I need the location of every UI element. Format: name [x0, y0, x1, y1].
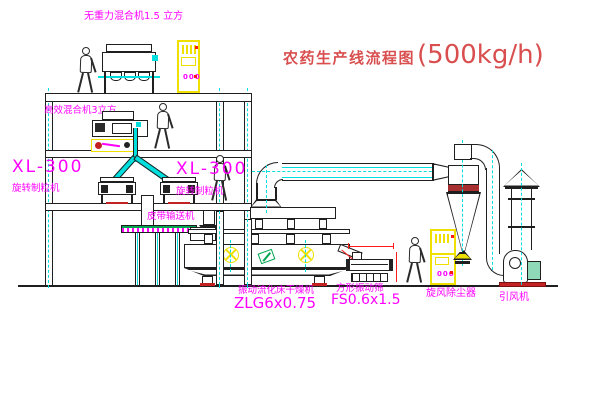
mount-centerline [305, 240, 306, 272]
building-column-right-front [244, 219, 252, 285]
discharge-flapper [455, 261, 470, 264]
granulator-motor [101, 185, 108, 193]
person-figure [151, 103, 175, 149]
person-figure [403, 237, 427, 283]
dryer-feed-pipe [203, 210, 215, 225]
mixer2-discharge-pipe [133, 128, 138, 154]
granulator-base [168, 202, 190, 204]
duct-drop-centerline [266, 165, 267, 213]
screen-deck-line [351, 264, 388, 265]
mixer-body [102, 52, 156, 72]
foot-pad [312, 283, 327, 286]
hood-connector [287, 219, 295, 229]
hood-connector [255, 219, 263, 229]
screen-model-label: FS0.6x1.5 [331, 293, 401, 307]
spring-mount [204, 234, 213, 244]
granulator-motor [126, 185, 133, 193]
fan-scroll [503, 250, 528, 283]
dimension-line [348, 246, 394, 247]
cyclone-cone [446, 192, 481, 252]
mixer2-gearbox [112, 123, 132, 134]
dimension-tick [393, 243, 394, 249]
cabinet-divider [432, 253, 454, 255]
top-mixer-label: 无重力混合机1.5 立方 [84, 12, 183, 22]
conveyor-leg [175, 233, 180, 285]
screen-end-cap [389, 259, 393, 271]
mixer-shaft [98, 76, 160, 78]
column-centerline [247, 219, 248, 285]
screen-base [351, 273, 388, 282]
duct-centerline [252, 171, 452, 172]
spring-mount [286, 234, 295, 244]
duct-horizontal [282, 163, 434, 181]
foot-pad [200, 283, 215, 286]
hood-connector [319, 219, 327, 229]
granulator-leg [101, 195, 103, 204]
granulator-leg [163, 195, 165, 204]
drive-belt [102, 143, 120, 147]
mixer-rim [106, 44, 152, 52]
conveyor-leg [155, 233, 160, 285]
duct-vertical-wall [256, 183, 258, 200]
granulator-base [106, 202, 128, 204]
cyclone-label: 旋风除尘器 [426, 289, 476, 299]
fan-motor [527, 261, 541, 280]
mixer2-top-unit [102, 111, 134, 120]
mount-centerline [230, 240, 231, 272]
granulator-left-model: XL-300 [12, 159, 83, 176]
floor-slab-top [45, 93, 252, 102]
belt-surface [122, 226, 196, 228]
diagram-title: 农药生产线流程图 (500kg/h) [283, 40, 544, 72]
dimension-line [396, 252, 397, 282]
stack-centerline [521, 163, 522, 285]
airflow-symbol [298, 247, 314, 263]
mixer-leg [152, 72, 154, 93]
mixer-leg [104, 72, 106, 93]
granulator-mid-model: XL-300 [176, 161, 247, 178]
fan-base [499, 282, 546, 287]
mixer2-motor [95, 123, 105, 132]
cyclone-discharge [453, 252, 472, 260]
dryer-model-label: ZLG6x0.75 [234, 296, 316, 311]
building-column-middle-front [216, 211, 224, 285]
dryer-exhaust-hood [250, 207, 336, 219]
screen-body [346, 259, 393, 271]
spring-mount [322, 234, 331, 244]
mixer2-valve [136, 122, 141, 127]
belt-conveyor [121, 225, 197, 233]
cyclone-band [448, 184, 479, 192]
mixer2-drive-frame [91, 139, 137, 152]
screen-end-cap [346, 259, 350, 271]
cabinet-display: 000 [183, 73, 201, 81]
belt-conveyor-label: 皮带输送机 [147, 212, 195, 222]
airflow-symbol [223, 247, 239, 263]
title-capacity: (500kg/h) [417, 40, 544, 70]
granulator-leg [131, 195, 133, 204]
drive-pulley [124, 142, 130, 148]
dimension-tick [348, 243, 349, 249]
granulator-left [98, 177, 136, 205]
conveyor-leg [135, 233, 140, 285]
drive-motor [95, 142, 102, 149]
flow-diagram-canvas: 无重力混合机1.5 立方 000 高效混合机3立方 [0, 0, 600, 403]
mixer-pipe-stub [152, 55, 158, 61]
control-cabinet-top: 000 [177, 40, 200, 93]
title-text: 农药生产线流程图 [283, 44, 415, 72]
column-centerline [219, 211, 220, 285]
person-figure [74, 47, 98, 93]
duct-elbow-outer [256, 162, 278, 184]
granulator-mid-name: 旋转制粒机 [176, 187, 224, 197]
fan-label: 引风机 [499, 293, 529, 303]
granulator-motor [163, 185, 170, 193]
dryer-bottom-taper [184, 268, 350, 276]
granulator-left-name: 旋转制粒机 [12, 184, 60, 194]
downcomer-duct [486, 168, 500, 254]
